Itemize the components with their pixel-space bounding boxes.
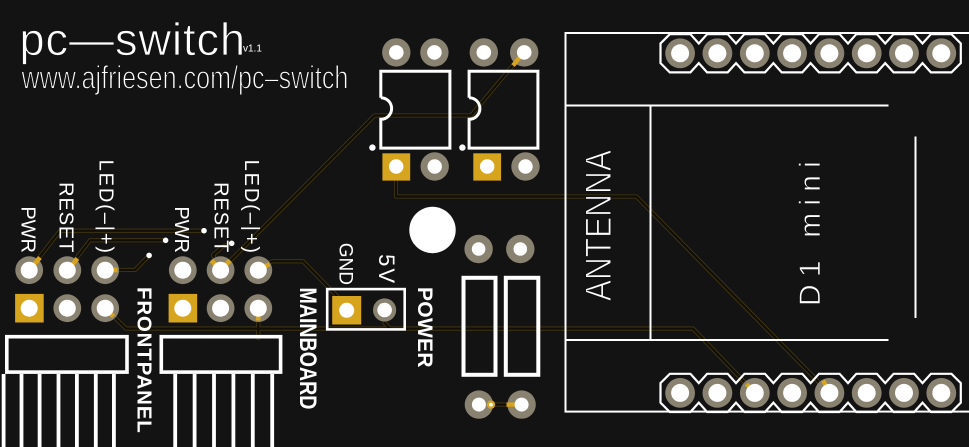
- svg-text:LED(–|+): LED(–|+): [240, 160, 262, 255]
- svg-text:RESET: RESET: [54, 182, 76, 253]
- svg-text:MAINBOARD: MAINBOARD: [295, 288, 323, 410]
- svg-text:FRONTPANEL: FRONTPANEL: [133, 287, 156, 434]
- svg-text:D1 mini: D1 mini: [794, 154, 827, 306]
- svg-text:PWR: PWR: [16, 206, 38, 253]
- svg-text:5V: 5V: [374, 254, 399, 285]
- svg-text:LED(–|+): LED(–|+): [94, 160, 116, 255]
- svg-text:PWR: PWR: [170, 206, 192, 253]
- svg-text:pc—switch: pc—switch: [20, 14, 247, 65]
- svg-text:v1.1: v1.1: [243, 44, 262, 55]
- svg-text:GND: GND: [335, 243, 356, 285]
- svg-text:ANTENNA: ANTENNA: [579, 150, 620, 301]
- svg-text:RESET: RESET: [210, 182, 232, 253]
- svg-text:www.ajfriesen.com/pc–switch: www.ajfriesen.com/pc–switch: [21, 61, 349, 97]
- svg-text:POWER: POWER: [413, 287, 436, 368]
